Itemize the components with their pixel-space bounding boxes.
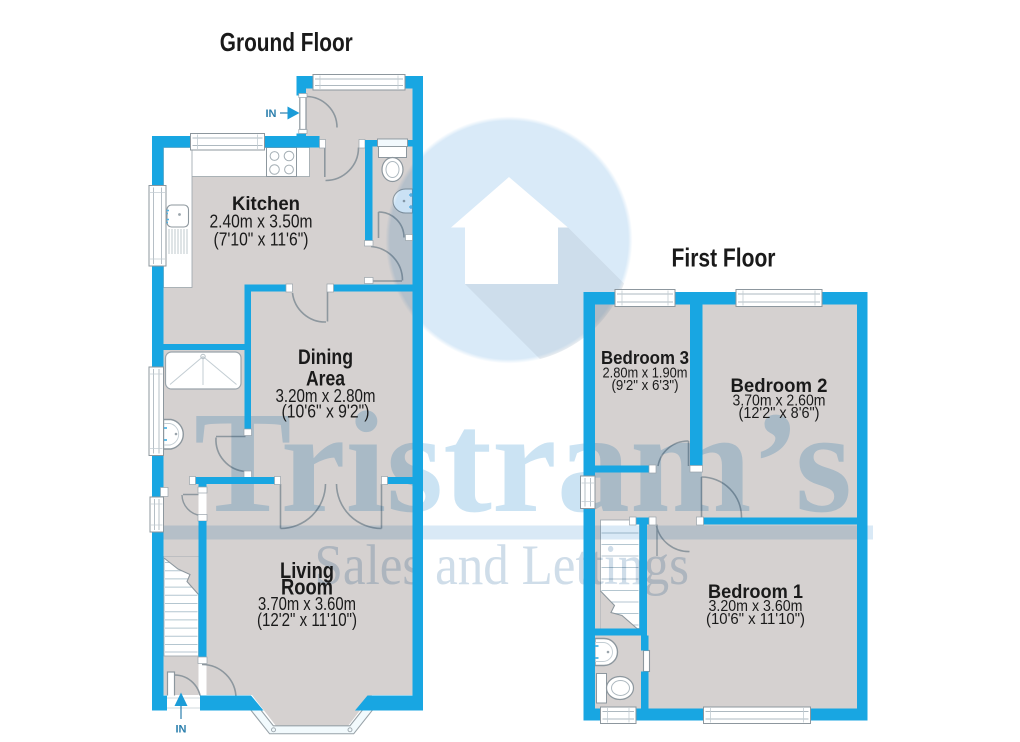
svg-text:(9'2" x 6'3"): (9'2" x 6'3") bbox=[612, 377, 679, 394]
svg-text:IN: IN bbox=[176, 724, 187, 736]
svg-text:First Floor: First Floor bbox=[672, 243, 776, 273]
svg-text:Ground Floor: Ground Floor bbox=[220, 27, 353, 57]
svg-text:(10'6" x 11'10"): (10'6" x 11'10") bbox=[706, 611, 805, 628]
svg-text:(7'10" x 11'6"): (7'10" x 11'6") bbox=[214, 230, 309, 250]
svg-text:(10'6" x 9'2"): (10'6" x 9'2") bbox=[282, 402, 370, 422]
svg-text:(12'2" x 8'6"): (12'2" x 8'6") bbox=[739, 405, 820, 422]
svg-text:Dining: Dining bbox=[298, 345, 353, 369]
svg-text:IN: IN bbox=[266, 108, 277, 120]
svg-text:Sales and Lettings: Sales and Lettings bbox=[315, 534, 690, 597]
svg-text:(12'2" x 11'10"): (12'2" x 11'10") bbox=[257, 610, 357, 630]
svg-text:2.40m x 3.50m: 2.40m x 3.50m bbox=[210, 212, 313, 232]
